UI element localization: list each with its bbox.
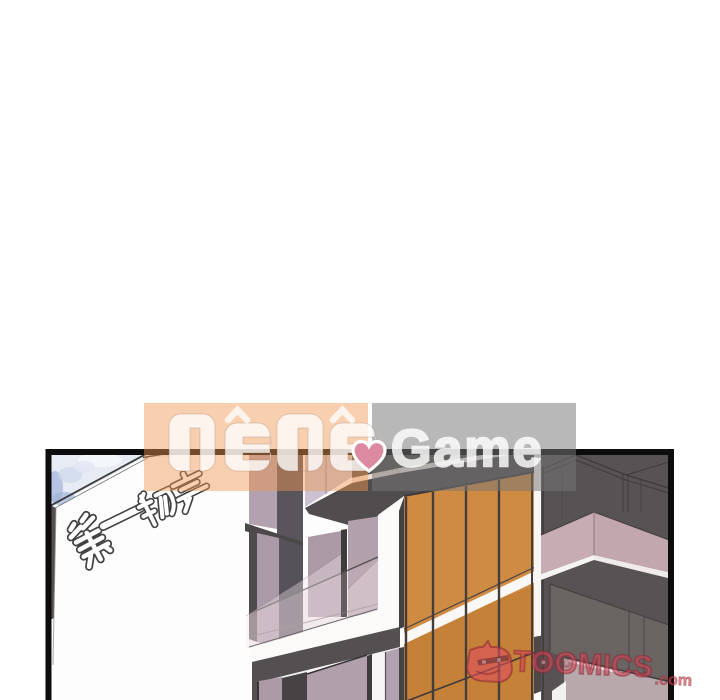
svg-text:Game: Game [391,420,544,478]
svg-text:.com: .com [654,671,692,690]
svg-text:TOOMICS: TOOMICS [513,645,654,684]
